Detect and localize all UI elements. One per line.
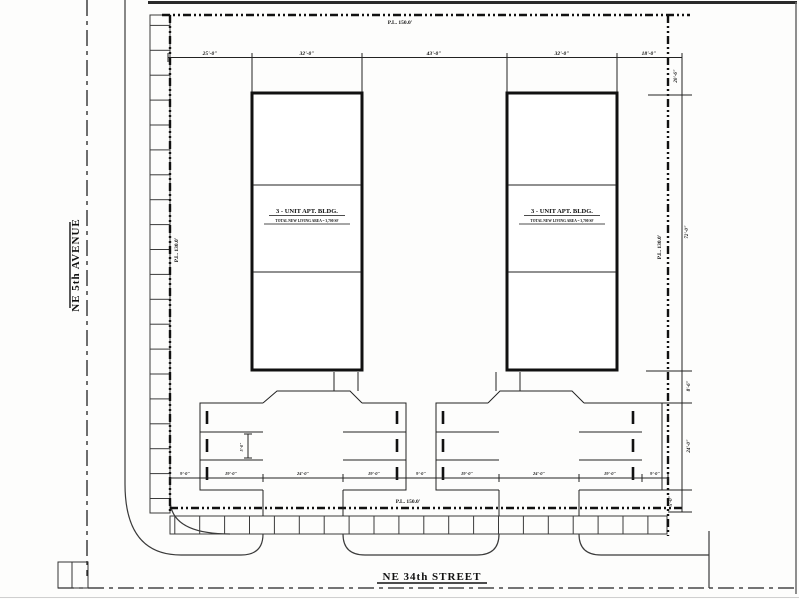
svg-text:5'-0": 5'-0"	[669, 495, 674, 506]
property-line-bottom-label: P.L. 150.0'	[396, 499, 421, 505]
site-plan-drawing: P.L. 150.0' P.L. 150.0' P.L. 130.0' P.L.…	[0, 0, 799, 599]
right-building-subtitle: TOTAL NEW LIVING AREA = 3,700 SF	[530, 219, 594, 223]
svg-text:19'-0": 19'-0"	[604, 471, 616, 476]
right-building: 3 - UNIT APT. BLDG. TOTAL NEW LIVING ARE…	[507, 93, 617, 370]
svg-text:43'-0": 43'-0"	[426, 51, 442, 57]
right-dimension-labels: 20'-6" 72'-0" 8'-6" 24'-0" 5'-0"	[669, 69, 692, 506]
svg-text:8'-6": 8'-6"	[687, 380, 692, 391]
left-parking-lot	[200, 403, 406, 516]
property-line-left-label: P.L. 130.0'	[174, 237, 180, 262]
street-name-bottom: NE 34th STREET	[383, 571, 482, 583]
left-building-subtitle: TOTAL NEW LIVING AREA = 3,700 SF	[275, 219, 339, 223]
svg-text:9'-0": 9'-0"	[180, 471, 190, 476]
svg-text:9'-0": 9'-0"	[416, 471, 426, 476]
svg-text:9'-0": 9'-0"	[650, 471, 660, 476]
property-line-right-label: P.L. 130.0'	[657, 234, 663, 259]
svg-text:32'-0": 32'-0"	[299, 51, 315, 57]
svg-text:24'-0": 24'-0"	[296, 471, 309, 476]
left-building-title: 3 - UNIT APT. BLDG.	[276, 208, 338, 215]
svg-text:32'-0": 32'-0"	[554, 51, 570, 57]
svg-text:20'-6": 20'-6"	[674, 69, 679, 84]
stall-width-label: 5'-0"	[239, 443, 244, 452]
right-building-title: 3 - UNIT APT. BLDG.	[531, 208, 593, 215]
svg-text:19'-0": 19'-0"	[461, 471, 473, 476]
svg-text:24'-0": 24'-0"	[687, 439, 692, 454]
svg-text:18'-0": 18'-0"	[642, 51, 657, 57]
svg-text:72'-0": 72'-0"	[685, 225, 690, 239]
site-plan-page: P.L. 150.0' P.L. 150.0' P.L. 130.0' P.L.…	[0, 0, 799, 599]
top-dimension-line	[168, 53, 682, 93]
svg-text:19'-0": 19'-0"	[368, 471, 380, 476]
svg-text:24'-0": 24'-0"	[532, 471, 545, 476]
walkway-connectors	[263, 372, 584, 403]
left-building: 3 - UNIT APT. BLDG. TOTAL NEW LIVING ARE…	[252, 93, 362, 370]
svg-text:25'-0": 25'-0"	[202, 51, 218, 57]
property-line-top-label: P.L. 150.0'	[388, 20, 413, 26]
parking-dimension-labels: 9'-0" 19'-0" 24'-0" 19'-0" 9'-0" 19'-0" …	[180, 471, 660, 476]
right-parking-lot	[436, 403, 662, 516]
svg-text:19'-0": 19'-0"	[225, 471, 237, 476]
street-name-left: NE 5th AVENUE	[70, 218, 82, 312]
top-dimension-labels: 25'-0" 32'-0" 43'-0" 32'-0" 18'-0"	[202, 51, 657, 57]
